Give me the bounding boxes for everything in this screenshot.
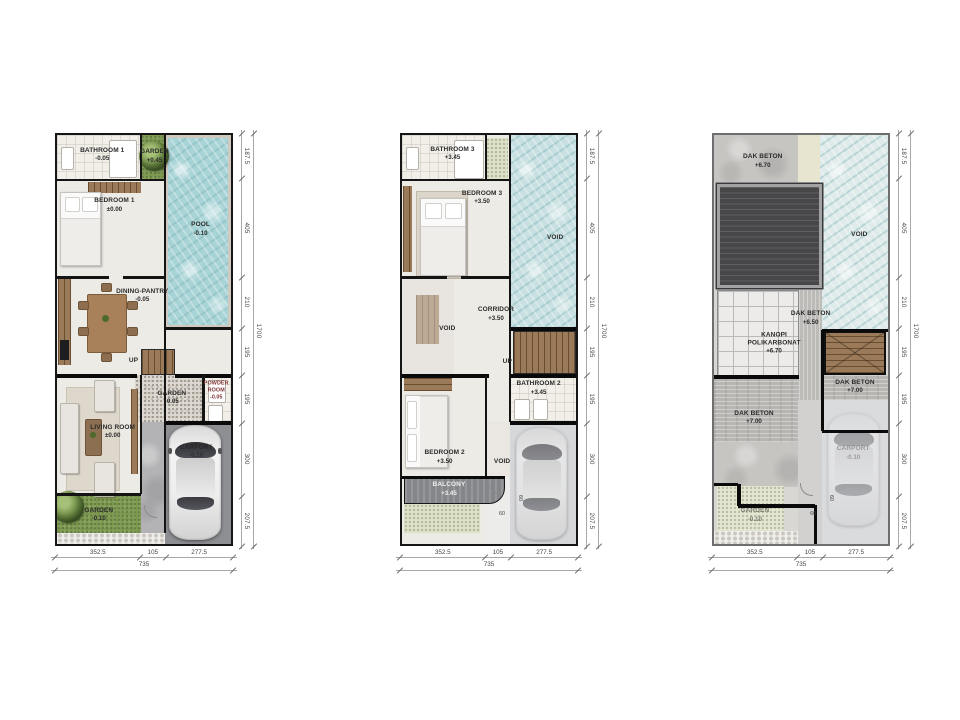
room-label-dak-beton-left: DAK BETON +7.00 xyxy=(734,410,773,427)
dim-value: 187.5 xyxy=(243,147,250,164)
room-level: +0.45 xyxy=(140,156,169,164)
roof-plan: DAK BETON +6.70 VOID DAK BETON +6.50 KAN… xyxy=(712,133,890,546)
room-label-powder-room: POWDER ROOM -0.05 xyxy=(203,381,229,402)
dim-value: 207.5 xyxy=(243,512,250,529)
desk xyxy=(404,378,453,390)
void-label: VOID xyxy=(851,231,867,239)
room-label-carport-ghost: CARPORT -0.10 xyxy=(837,445,870,462)
door-dim: 60 xyxy=(828,495,834,501)
car-rear-window xyxy=(523,498,560,510)
chair xyxy=(101,353,112,362)
pillow xyxy=(425,203,443,219)
room-name: BEDROOM 3 xyxy=(462,189,502,197)
dim-value: 105 xyxy=(148,549,159,556)
room-level: +3.50 xyxy=(478,314,514,322)
bathroom3-sink xyxy=(406,147,418,169)
stove xyxy=(60,340,70,360)
room-name: BATHROOM 3 xyxy=(430,146,474,154)
stairs-direction: UP xyxy=(129,357,138,365)
room-level: +7.00 xyxy=(835,387,874,395)
second-floor-drawing: BATHROOM 3 +3.45 BEDROOM 3 +3.50 VOID CO… xyxy=(400,133,578,546)
room-label-bathroom1: BATHROOM 1 -0.05 xyxy=(80,146,124,163)
stairs xyxy=(513,331,576,374)
right-dimension-column: 187.5 405 210 195 195 300 207.5 1700 xyxy=(581,133,611,546)
dim-value: 187.5 xyxy=(900,147,907,164)
bottom-dimension-row: 352.5 105 277.5 735 xyxy=(712,548,890,580)
wall xyxy=(714,375,799,379)
dimension-line xyxy=(241,130,242,549)
room-level: -0.05 xyxy=(80,155,124,163)
chair xyxy=(101,283,112,292)
ground-floor-plan: BATHROOM 1 -0.05 GARDEN +0.45 BEDROOM 1 … xyxy=(55,133,233,546)
ground-floor-drawing: BATHROOM 1 -0.05 GARDEN +0.45 BEDROOM 1 … xyxy=(55,133,233,546)
dim-value: 195 xyxy=(588,393,595,404)
car-roof xyxy=(523,460,561,497)
armchair xyxy=(94,380,115,413)
room-name: GARDEN xyxy=(140,148,169,156)
room-name: LIVING ROOM xyxy=(90,423,135,431)
dim-value: 105 xyxy=(805,549,816,556)
floor-plan-sheet: BATHROOM 1 -0.05 GARDEN +0.45 BEDROOM 1 … xyxy=(0,0,960,720)
wall xyxy=(57,276,109,279)
wall xyxy=(822,430,888,434)
dim-value: 405 xyxy=(588,222,595,233)
room-label-bedroom2: BEDROOM 2 +3.50 xyxy=(424,449,464,466)
room-name: CARPORT xyxy=(837,445,870,453)
bottom-dimension-row: 352.5 105 277.5 735 xyxy=(400,548,578,580)
room-label-bathroom2: BATHROOM 2 +3.45 xyxy=(516,380,560,397)
dim-value: 405 xyxy=(900,222,907,233)
room-label-carport: CARPORT -0.10 xyxy=(180,444,213,461)
wall xyxy=(510,374,576,378)
door-dim: 60 xyxy=(810,511,816,517)
dim-value: 405 xyxy=(243,222,250,233)
room-level: +6.50 xyxy=(791,318,830,326)
room-level: -0.10 xyxy=(180,452,213,460)
room-name: DAK BETON xyxy=(835,378,874,386)
dim-value: 195 xyxy=(588,346,595,357)
dimension-line xyxy=(51,557,237,558)
room-label-living-room: LIVING ROOM ±0.00 xyxy=(90,423,135,440)
dim-value: 352.5 xyxy=(435,549,451,556)
room-level: -0.10 xyxy=(84,515,113,523)
dim-value: 277.5 xyxy=(191,549,207,556)
room-label-garden: GARDEN -0.10 xyxy=(740,507,769,524)
dimension-line xyxy=(598,130,599,549)
room-name: POOL xyxy=(191,221,210,229)
pillow xyxy=(407,401,417,429)
room-name: CORRIDOR xyxy=(478,306,514,314)
dim-value: 207.5 xyxy=(588,512,595,529)
car-windshield xyxy=(522,444,562,460)
room-name: DAK BETON xyxy=(791,310,830,318)
dimension-line xyxy=(396,570,582,571)
dim-total: 1700 xyxy=(600,324,607,339)
wall xyxy=(714,483,738,487)
stair-roof xyxy=(824,331,887,376)
room-name: DINING-PANTRY xyxy=(116,287,168,295)
room-label-dak-beton-right: DAK BETON +7.00 xyxy=(835,378,874,395)
room-label-bathroom3: BATHROOM 3 +3.45 xyxy=(430,146,474,163)
dimension-line xyxy=(586,130,587,549)
dimension-line xyxy=(708,570,894,571)
dim-value: 210 xyxy=(588,297,595,308)
dim-total: 735 xyxy=(139,561,150,568)
room-name: BEDROOM 1 xyxy=(94,197,134,205)
room-level: +6.70 xyxy=(743,161,782,169)
wardrobe xyxy=(403,186,412,272)
bathroom1-sink xyxy=(61,147,73,169)
wall xyxy=(165,327,231,330)
room-label-dak-beton-mid: DAK BETON +6.50 xyxy=(791,310,830,327)
wall xyxy=(402,179,510,182)
armchair xyxy=(94,462,115,497)
wall xyxy=(57,493,141,496)
room-label-garden-mid: GARDEN -0.05 xyxy=(157,390,186,407)
room-name: VOID xyxy=(851,231,867,239)
room-level: +3.45 xyxy=(433,489,466,497)
blanket xyxy=(61,218,99,265)
room-level: ±0.00 xyxy=(94,206,134,214)
room-level: -0.10 xyxy=(740,516,769,524)
wall xyxy=(165,421,231,425)
pillow xyxy=(407,434,417,462)
pebble-strip xyxy=(714,531,798,544)
wall xyxy=(402,476,505,480)
bed-bedroom3 xyxy=(420,198,466,276)
room-name: KANOPI POLIKARBONAT xyxy=(743,331,805,348)
room-name: BALCONY xyxy=(433,481,466,489)
wall xyxy=(123,276,165,279)
room-label-kanopi: KANOPI POLIKARBONAT +6.70 xyxy=(743,331,805,356)
tree xyxy=(55,491,84,523)
dim-value: 277.5 xyxy=(848,549,864,556)
room-label-dining-pantry: DINING-PANTRY -0.05 xyxy=(116,287,168,304)
dim-total: 1700 xyxy=(255,324,262,339)
void-label-right: VOID xyxy=(547,234,563,242)
car-mirror xyxy=(218,448,222,454)
chair xyxy=(127,327,138,336)
roof-plan-drawing: DAK BETON +6.70 VOID DAK BETON +6.50 KAN… xyxy=(712,133,890,546)
room-label-pool: POOL -0.10 xyxy=(191,221,210,238)
cream-strip xyxy=(798,135,821,182)
wall xyxy=(821,330,825,431)
wall xyxy=(140,375,143,494)
car-roof xyxy=(176,458,215,496)
stairs xyxy=(141,349,176,375)
room-name: BATHROOM 2 xyxy=(516,380,560,388)
bathroom2-toilet xyxy=(533,399,549,420)
room-label-garden-bottom: GARDEN -0.10 xyxy=(84,506,113,523)
dim-value: 277.5 xyxy=(536,549,552,556)
void-over-pool xyxy=(510,135,576,328)
room-level: +3.50 xyxy=(424,457,464,465)
right-dimension-column: 187.5 405 210 195 195 300 207.5 1700 xyxy=(893,133,923,546)
wall xyxy=(510,421,576,425)
bathroom2-sink xyxy=(514,399,530,420)
car-mirror xyxy=(168,448,172,454)
second-floor-plan: BATHROOM 3 +3.45 BEDROOM 3 +3.50 VOID CO… xyxy=(400,133,578,546)
room-name: POWDER ROOM xyxy=(203,381,229,395)
room-label-corridor: CORRIDOR +3.50 xyxy=(478,306,514,323)
room-level: ±0.00 xyxy=(90,432,135,440)
dim-value: 210 xyxy=(243,297,250,308)
room-level: -0.05 xyxy=(157,398,186,406)
dark-slat-roof xyxy=(717,184,821,288)
room-name: GARDEN xyxy=(740,507,769,515)
room-name: GARDEN xyxy=(157,390,186,398)
ghost-table-below xyxy=(416,295,439,344)
void-label-bottom: VOID xyxy=(494,458,510,466)
door-dim: 60 xyxy=(517,495,523,501)
room-level: +3.45 xyxy=(516,388,560,396)
pillow xyxy=(65,197,81,212)
wall xyxy=(57,179,165,182)
pillow xyxy=(445,203,463,219)
dim-total: 735 xyxy=(484,561,495,568)
wall xyxy=(509,135,512,328)
chair xyxy=(78,301,89,310)
dim-value: 195 xyxy=(900,393,907,404)
garden-below xyxy=(404,504,481,532)
wall xyxy=(485,375,488,476)
dim-value: 207.5 xyxy=(900,512,907,529)
wall xyxy=(510,327,576,331)
dimension-line xyxy=(708,557,894,558)
void-bottom-area xyxy=(486,422,510,476)
dimension-line xyxy=(51,570,237,571)
dim-value: 105 xyxy=(493,549,504,556)
room-level: +3.50 xyxy=(462,198,502,206)
room-name: CARPORT xyxy=(180,444,213,452)
void-label-left: VOID xyxy=(439,325,455,333)
room-level: -0.05 xyxy=(203,395,229,402)
wall xyxy=(822,329,888,333)
stairs-direction: UP xyxy=(503,357,512,365)
wall xyxy=(57,374,137,378)
dim-total: 1700 xyxy=(912,324,919,339)
dim-value: 300 xyxy=(588,454,595,465)
sofa xyxy=(60,403,79,475)
wall xyxy=(461,276,510,279)
room-level: +7.00 xyxy=(734,418,773,426)
dimension-line xyxy=(253,130,254,549)
room-level: -0.05 xyxy=(116,296,168,304)
room-level: +6.70 xyxy=(743,348,805,356)
car-top-view-ghost xyxy=(516,427,567,539)
chair xyxy=(78,327,89,336)
dim-value: 187.5 xyxy=(588,147,595,164)
room-level: +3.45 xyxy=(430,154,474,162)
bottom-dimension-row: 352.5 105 277.5 735 xyxy=(55,548,233,580)
planter-strip xyxy=(486,138,509,179)
dimension-line xyxy=(396,557,582,558)
dim-value: 352.5 xyxy=(90,549,106,556)
up-label: UP xyxy=(503,357,512,365)
door-dim: 60 xyxy=(499,511,505,517)
blanket xyxy=(421,226,465,275)
car-top-view xyxy=(169,425,221,540)
room-name: DAK BETON xyxy=(743,153,782,161)
wall xyxy=(402,276,447,279)
dim-value: 195 xyxy=(243,393,250,404)
dim-value: 195 xyxy=(900,346,907,357)
powder-sink xyxy=(208,405,222,422)
right-dimension-column: 187.5 405 210 195 195 300 207.5 1700 xyxy=(236,133,266,546)
wall xyxy=(509,328,512,422)
room-name: BEDROOM 2 xyxy=(424,449,464,457)
dim-value: 195 xyxy=(243,346,250,357)
car-rear-window xyxy=(177,497,215,510)
room-name: DAK BETON xyxy=(734,410,773,418)
up-label: UP xyxy=(129,357,138,365)
room-label-bedroom1: BEDROOM 1 ±0.00 xyxy=(94,197,134,214)
room-name: GARDEN xyxy=(84,506,113,514)
room-level: -0.10 xyxy=(837,453,870,461)
dim-value: 210 xyxy=(900,297,907,308)
dim-total: 735 xyxy=(796,561,807,568)
room-label-balcony: BALCONY +3.45 xyxy=(433,481,466,498)
room-name: BATHROOM 1 xyxy=(80,146,124,154)
path-strip xyxy=(798,400,822,544)
dim-value: 352.5 xyxy=(747,549,763,556)
room-name: VOID xyxy=(494,458,510,466)
dim-value: 300 xyxy=(243,454,250,465)
room-name: VOID xyxy=(439,325,455,333)
room-name: VOID xyxy=(547,234,563,242)
dimension-line xyxy=(898,130,899,549)
room-label-garden-top: GARDEN +0.45 xyxy=(140,148,169,165)
dim-value: 300 xyxy=(900,454,907,465)
pebble-strip xyxy=(57,533,165,544)
dimension-line xyxy=(910,130,911,549)
room-level: -0.10 xyxy=(191,229,210,237)
room-label-bedroom3: BEDROOM 3 +3.50 xyxy=(462,189,502,206)
room-label-dak-beton-top: DAK BETON +6.70 xyxy=(743,153,782,170)
wall xyxy=(485,135,488,180)
wall xyxy=(737,484,741,506)
wall xyxy=(402,374,489,378)
wall xyxy=(164,135,167,375)
